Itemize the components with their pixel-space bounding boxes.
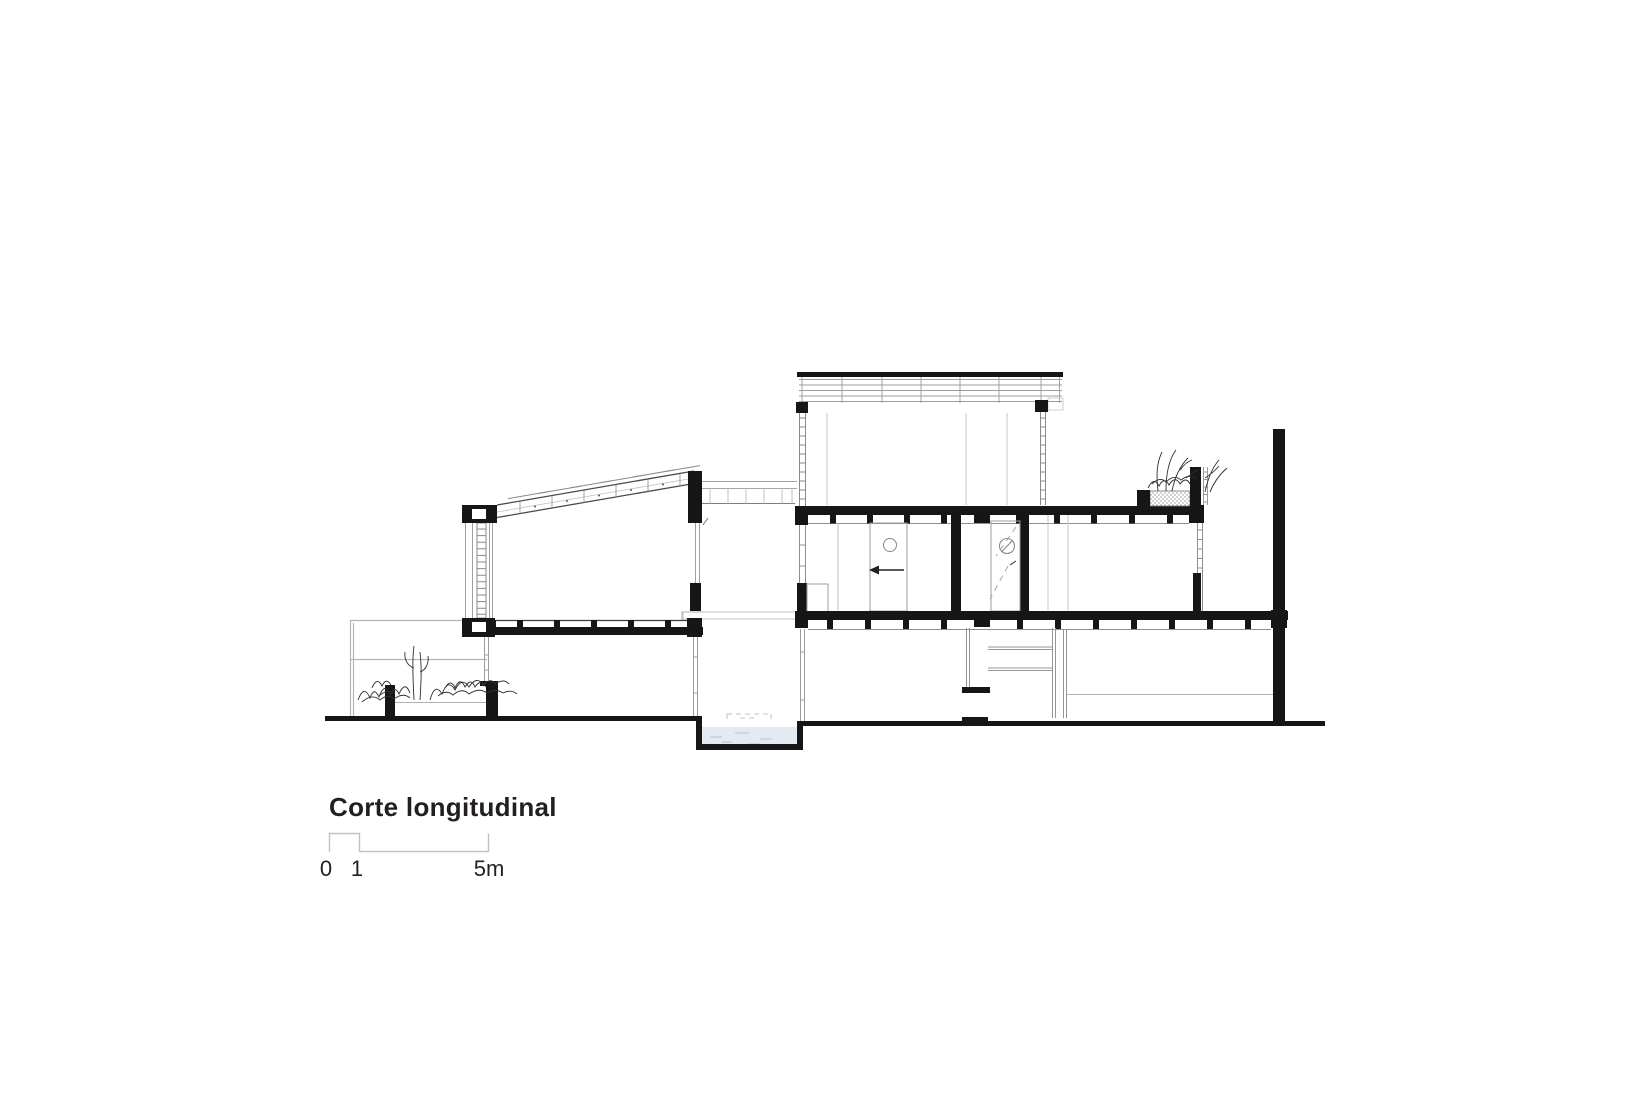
middle-volume: [795, 372, 1288, 630]
sheet: Corte longitudinal 0 1 5m: [0, 0, 1649, 1100]
scale-label-0: 0: [315, 856, 337, 882]
longitudinal-section-drawing: [0, 0, 1649, 1100]
lower-slab: [795, 610, 1288, 630]
ground-planter: [385, 681, 498, 716]
scale-bar: [330, 834, 489, 853]
stair-base-blocks: [962, 687, 990, 722]
left-volume-floor-slab: [462, 618, 703, 637]
sloped-roof: [497, 466, 700, 518]
terrace-plants: [1148, 450, 1227, 492]
upper-slab: [795, 505, 1204, 525]
left-volume: [462, 466, 708, 681]
interior-door: [869, 523, 907, 611]
bridge-canopy: [702, 482, 797, 504]
ground-line: [325, 716, 1325, 726]
mast-column: [1273, 429, 1285, 726]
shower-door: [990, 521, 1020, 611]
scale-label-1: 1: [346, 856, 368, 882]
clerestory-louvres: [799, 377, 1063, 410]
drawing-title: Corte longitudinal: [329, 792, 557, 823]
scale-label-5m: 5m: [468, 856, 510, 882]
stairs: [967, 628, 1067, 718]
roof-terrace-planter: [1137, 467, 1208, 507]
